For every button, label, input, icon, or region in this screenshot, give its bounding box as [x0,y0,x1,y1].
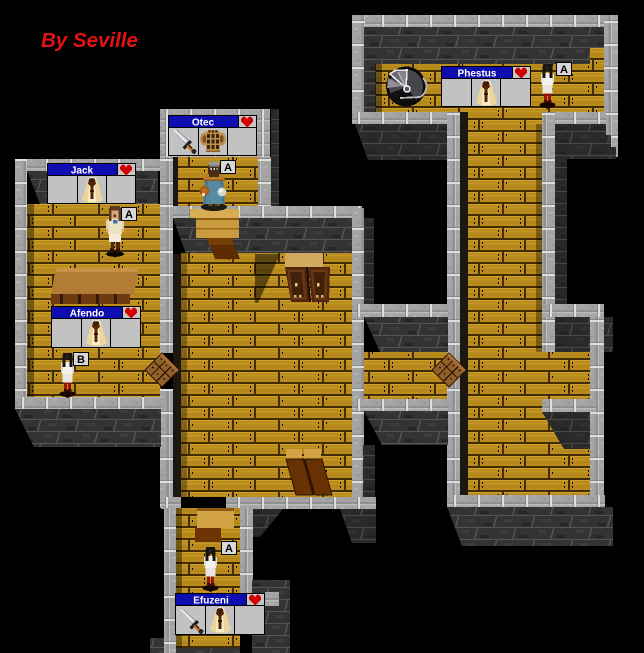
svg-text:Phestus: Phestus [458,69,497,80]
svg-text:Otec: Otec [192,118,215,129]
svg-text:A: A [125,209,133,221]
svg-text:Efuzeni: Efuzeni [193,596,229,607]
svg-text:B: B [77,354,85,366]
svg-text:A: A [224,162,232,174]
svg-text:Afendo: Afendo [70,309,104,320]
svg-text:A: A [560,64,568,76]
svg-text:A: A [225,543,233,555]
svg-text:By Seville: By Seville [41,29,138,52]
svg-text:Jack: Jack [71,166,94,177]
